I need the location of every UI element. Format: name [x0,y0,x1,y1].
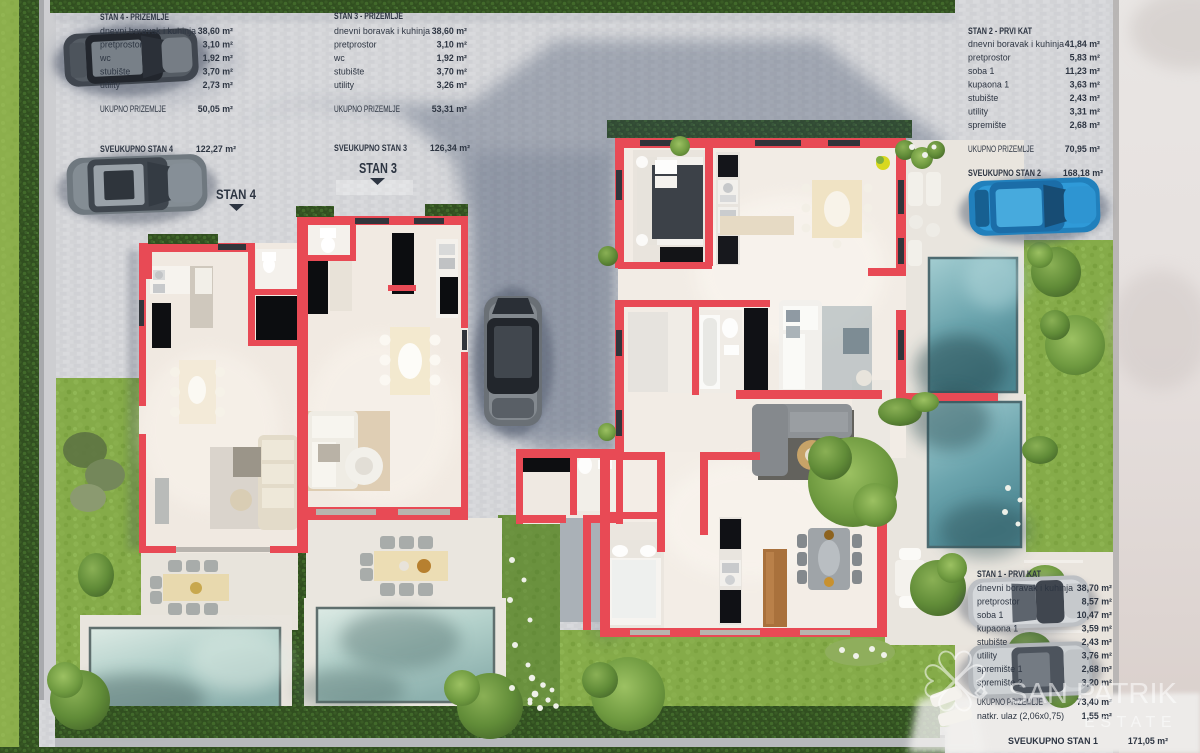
svg-text:pretprostor: pretprostor [100,40,143,50]
svg-text:SAN PATRIK: SAN PATRIK [1008,678,1178,710]
svg-text:utility: utility [977,651,998,661]
svg-text:171,05 m²: 171,05 m² [1128,736,1168,746]
svg-text:70,95 m²: 70,95 m² [1065,144,1100,154]
svg-text:soba 1: soba 1 [968,66,995,76]
svg-text:kupaona 1: kupaona 1 [968,80,1009,90]
svg-text:3,31 m²: 3,31 m² [1070,107,1100,117]
svg-text:STAN 1 - PRVI KAT: STAN 1 - PRVI KAT [977,569,1041,579]
svg-text:spremište: spremište [968,120,1006,130]
svg-text:38,60 m²: 38,60 m² [432,26,467,36]
svg-text:STAN 4 - PRIZEMLJE: STAN 4 - PRIZEMLJE [100,12,169,22]
svg-text:SVEUKUPNO STAN 1: SVEUKUPNO STAN 1 [1008,736,1098,746]
svg-text:3,26 m²: 3,26 m² [437,80,467,90]
svg-text:8,57 m²: 8,57 m² [1082,597,1112,607]
svg-text:2,43 m²: 2,43 m² [1082,637,1112,647]
svg-text:50,05 m²: 50,05 m² [198,104,233,114]
svg-text:dnevni boravak i kuhinja: dnevni boravak i kuhinja [334,26,430,36]
svg-text:38,70 m²: 38,70 m² [1077,583,1112,593]
svg-text:UKUPNO PRIZEMLJE: UKUPNO PRIZEMLJE [334,104,400,114]
svg-text:2,68 m²: 2,68 m² [1070,120,1100,130]
svg-text:soba 1: soba 1 [977,610,1004,620]
svg-text:pretprostor: pretprostor [334,40,377,50]
svg-text:wc: wc [333,53,345,63]
svg-text:dnevni boravak i kuhinja: dnevni boravak i kuhinja [100,26,196,36]
svg-text:11,23 m²: 11,23 m² [1065,66,1100,76]
svg-text:1,92 m²: 1,92 m² [203,53,233,63]
svg-text:wc: wc [99,53,111,63]
svg-text:2,73 m²: 2,73 m² [203,80,233,90]
svg-text:utility: utility [100,80,121,90]
svg-text:5,83 m²: 5,83 m² [1070,53,1100,63]
svg-text:UKUPNO PRIZEMLJE: UKUPNO PRIZEMLJE [968,144,1034,154]
svg-text:UKUPNO PRIZEMLJE: UKUPNO PRIZEMLJE [100,104,166,114]
svg-text:SVEUKUPNO STAN 3: SVEUKUPNO STAN 3 [334,143,407,153]
svg-text:SVEUKUPNO STAN 2: SVEUKUPNO STAN 2 [968,168,1041,178]
svg-text:SVEUKUPNO STAN 4: SVEUKUPNO STAN 4 [100,144,173,154]
svg-text:pretprostor: pretprostor [968,53,1011,63]
svg-text:utility: utility [968,107,989,117]
svg-text:3,63 m²: 3,63 m² [1070,80,1100,90]
svg-text:STAN 4: STAN 4 [216,186,256,202]
svg-text:38,60 m²: 38,60 m² [198,26,233,36]
svg-text:3,59 m²: 3,59 m² [1082,624,1112,634]
svg-text:stubište: stubište [977,637,1007,647]
svg-text:3,70 m²: 3,70 m² [203,67,233,77]
svg-text:pretprostor: pretprostor [977,597,1020,607]
svg-text:10,47 m²: 10,47 m² [1077,610,1112,620]
svg-text:1,92 m²: 1,92 m² [437,53,467,63]
svg-text:2,43 m²: 2,43 m² [1070,93,1100,103]
svg-text:natkr. ulaz (2,06x0,75): natkr. ulaz (2,06x0,75) [977,711,1064,721]
svg-text:122,27 m²: 122,27 m² [196,144,236,154]
svg-text:STAN 2 - PRVI KAT: STAN 2 - PRVI KAT [968,26,1032,36]
svg-text:3,10 m²: 3,10 m² [437,40,467,50]
svg-text:ESTATE: ESTATE [1084,714,1177,731]
svg-text:3,76 m²: 3,76 m² [1082,651,1112,661]
svg-text:kupaona 1: kupaona 1 [977,624,1018,634]
svg-text:126,34 m²: 126,34 m² [430,143,470,153]
svg-text:3,10 m²: 3,10 m² [203,40,233,50]
svg-text:41,84 m²: 41,84 m² [1065,39,1100,49]
svg-text:STAN 3: STAN 3 [359,161,397,177]
svg-text:stubište: stubište [968,93,998,103]
svg-text:53,31 m²: 53,31 m² [432,104,467,114]
svg-text:STAN 3 - PRIZEMLJE: STAN 3 - PRIZEMLJE [334,11,403,21]
svg-text:dnevni boravak i kuhinja: dnevni boravak i kuhinja [968,39,1064,49]
svg-text:dnevni boravak i kuhinja: dnevni boravak i kuhinja [977,583,1073,593]
svg-text:3,70 m²: 3,70 m² [437,67,467,77]
svg-text:2,68 m²: 2,68 m² [1082,664,1112,674]
svg-text:stubište: stubište [334,67,364,77]
svg-text:utility: utility [334,80,355,90]
svg-text:168,18 m²: 168,18 m² [1063,168,1103,178]
svg-text:stubište: stubište [100,67,130,77]
